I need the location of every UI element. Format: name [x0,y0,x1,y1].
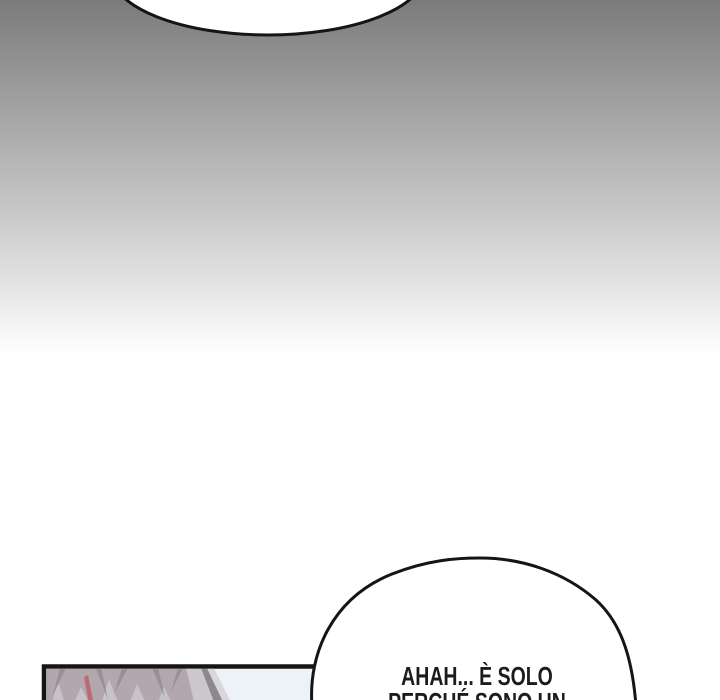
speech-line-1: AHAH... È SOLO [327,663,627,689]
comic-page: AHAH... È SOLO PERCHÉ SONO UN [0,0,720,700]
speech-line-2: PERCHÉ SONO UN [327,689,627,700]
comic-scene [0,0,720,700]
speech-bubble-text: AHAH... È SOLO PERCHÉ SONO UN [327,663,627,700]
hair-mass [46,668,210,700]
speech-bubble-top [111,0,425,35]
panel-artwork [46,668,235,700]
